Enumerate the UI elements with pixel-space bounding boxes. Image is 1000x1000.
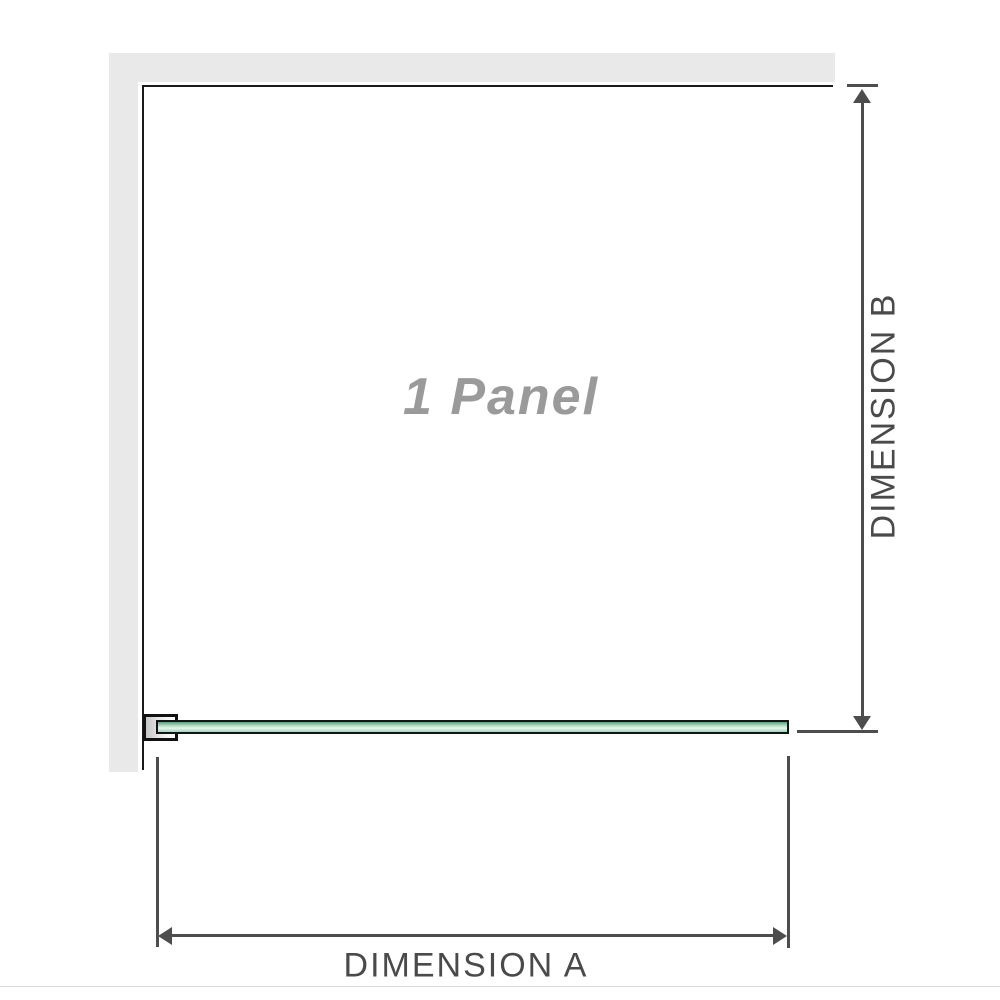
dimension-b-label: DIMENSION B	[865, 293, 904, 540]
wall-top	[109, 53, 835, 82]
arrow-left-icon	[158, 927, 172, 945]
dimension-b-tick-bottom	[797, 730, 878, 733]
dimension-a-label: DIMENSION A	[344, 947, 589, 986]
glass-panel	[156, 720, 789, 734]
dimension-a-line	[170, 934, 775, 937]
arrow-down-icon	[853, 716, 871, 730]
dimension-b-tick-top	[847, 84, 878, 87]
arrow-up-icon	[853, 89, 871, 103]
dimension-a-extension-right	[787, 756, 790, 948]
panel-count-label: 1 Panel	[403, 367, 599, 427]
image-bottom-border	[0, 986, 1000, 987]
enclosure-edge-top	[142, 85, 833, 87]
panel-configuration-diagram: 1 Panel DIMENSION B DIMENSION A	[0, 0, 1000, 1000]
wall-left	[109, 53, 138, 772]
arrow-right-icon	[773, 927, 787, 945]
enclosure-edge-left	[142, 85, 144, 770]
dimension-a-extension-left	[156, 757, 159, 947]
